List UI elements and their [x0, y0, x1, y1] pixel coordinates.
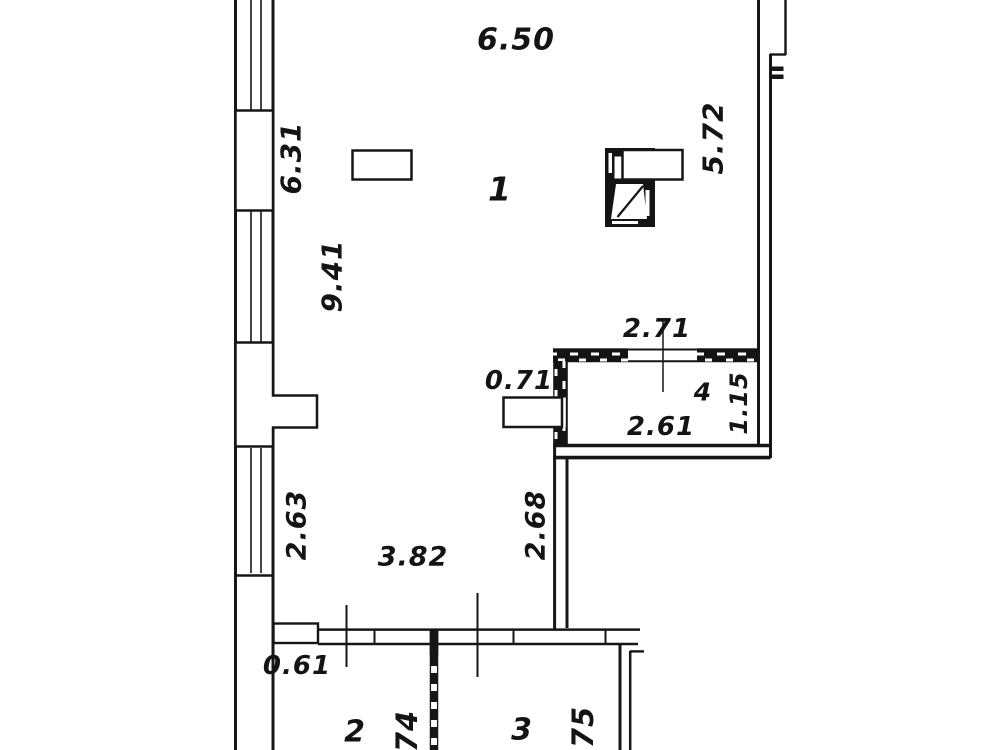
- lower-inner-wall: [555, 446, 567, 629]
- room-1-number: 1: [488, 170, 512, 209]
- right-exterior-wall: [759, 0, 787, 458]
- dim-room4-width: 2.61: [627, 412, 695, 442]
- balcony-3-code: 75: [566, 706, 600, 748]
- wall-pier-071: [504, 398, 563, 428]
- wall-pier-middle: [236, 343, 318, 447]
- dim-lower-room-width: 3.82: [378, 542, 449, 573]
- dim-right-wall: 5.72: [697, 101, 730, 174]
- balcony-2-code: 74: [390, 710, 424, 750]
- wall-step: [274, 624, 319, 644]
- dim-pier-width: 0.71: [485, 366, 553, 396]
- furniture-rect: [353, 151, 412, 180]
- dim-lower-wall-height: 2.68: [521, 490, 552, 561]
- dim-left-wall-upper: 6.31: [275, 121, 308, 194]
- balcony-dashed-partition: [430, 629, 439, 750]
- dim-room4-top-width: 2.71: [623, 314, 691, 344]
- dim-left-wall-middle: 9.41: [316, 239, 349, 312]
- window-mullions: [251, 0, 261, 573]
- vent-shaft: [605, 148, 683, 227]
- dim-left-window-lower: 2.63: [282, 490, 313, 561]
- dim-top-width: 6.50: [477, 23, 555, 58]
- dim-bottom-step: 0.61: [263, 651, 331, 681]
- floorplan-canvas: 6.50 6.31 9.41 5.72 2.71 0.71 2.61 1.15 …: [0, 0, 1000, 750]
- wall-pier-upper: [236, 111, 274, 211]
- room-2-number: 2: [344, 715, 366, 750]
- room-3-number: 3: [511, 713, 533, 748]
- dim-room4-depth: 1.15: [725, 371, 753, 434]
- room-4-number: 4: [694, 378, 712, 407]
- left-exterior-wall: [235, 0, 318, 750]
